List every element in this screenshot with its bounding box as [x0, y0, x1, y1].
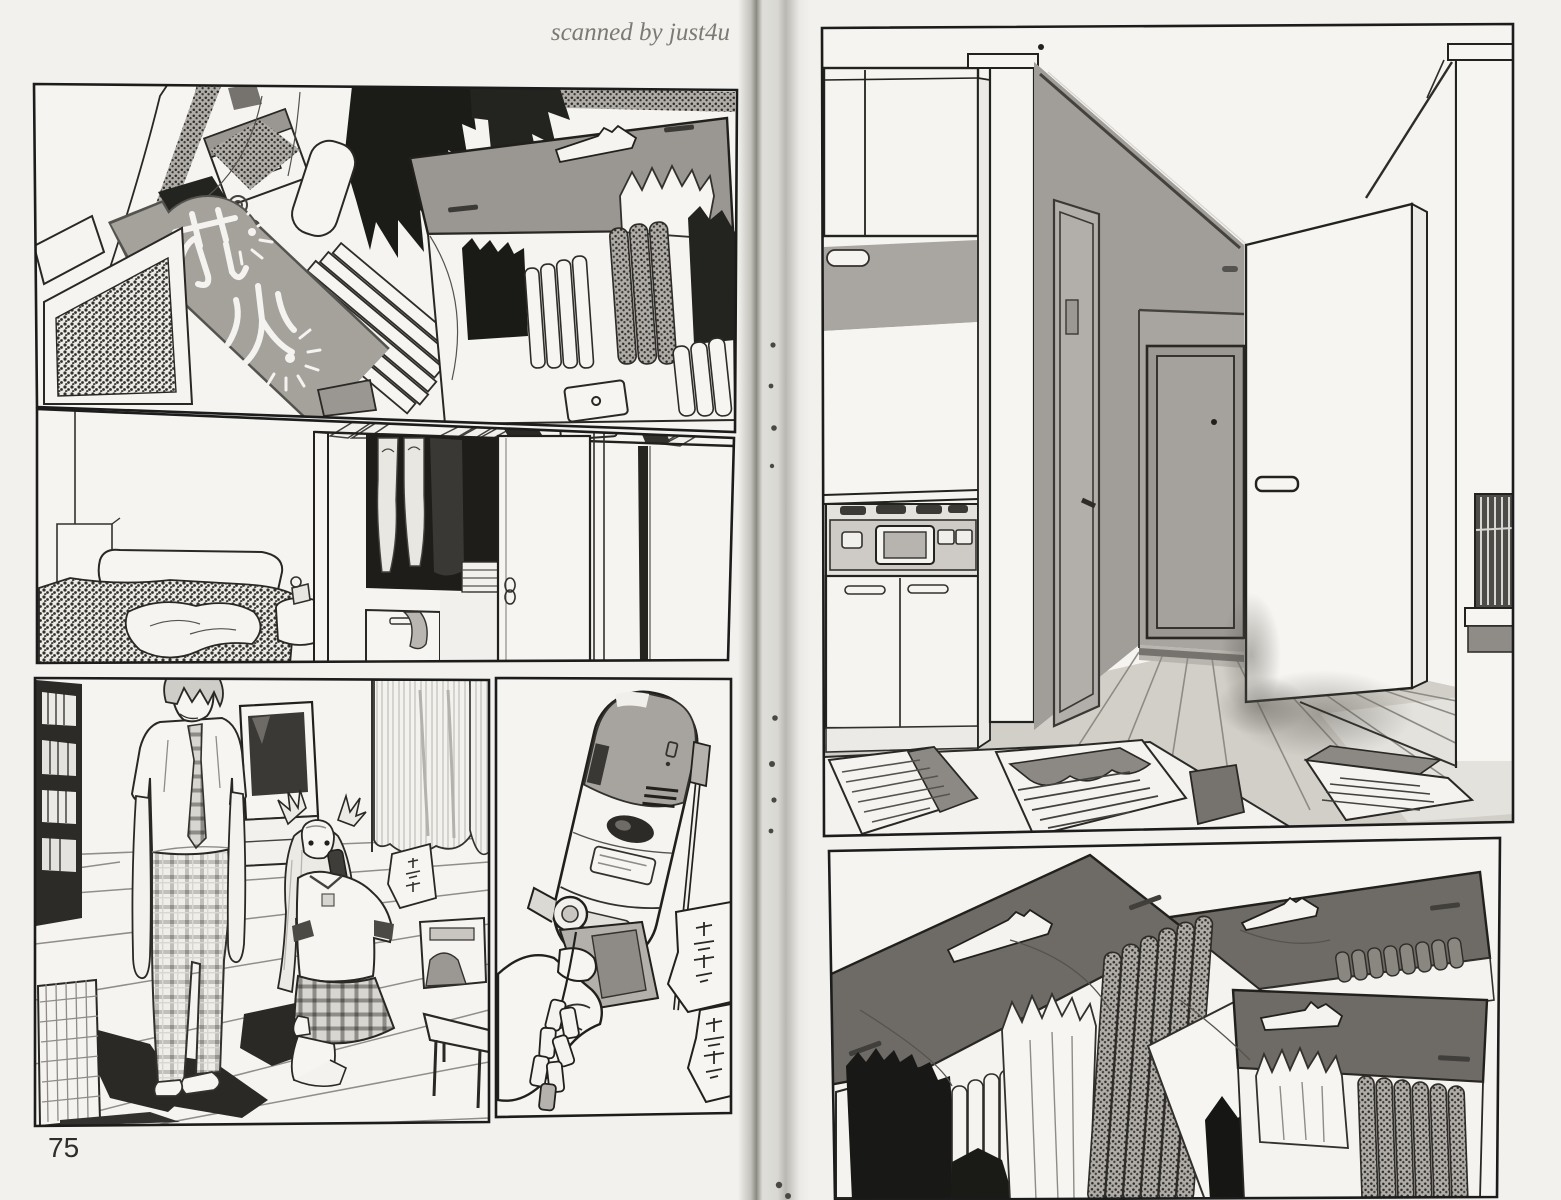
- svg-text:scanned by just4u: scanned by just4u: [551, 19, 730, 46]
- svg-text:75: 75: [48, 1132, 79, 1163]
